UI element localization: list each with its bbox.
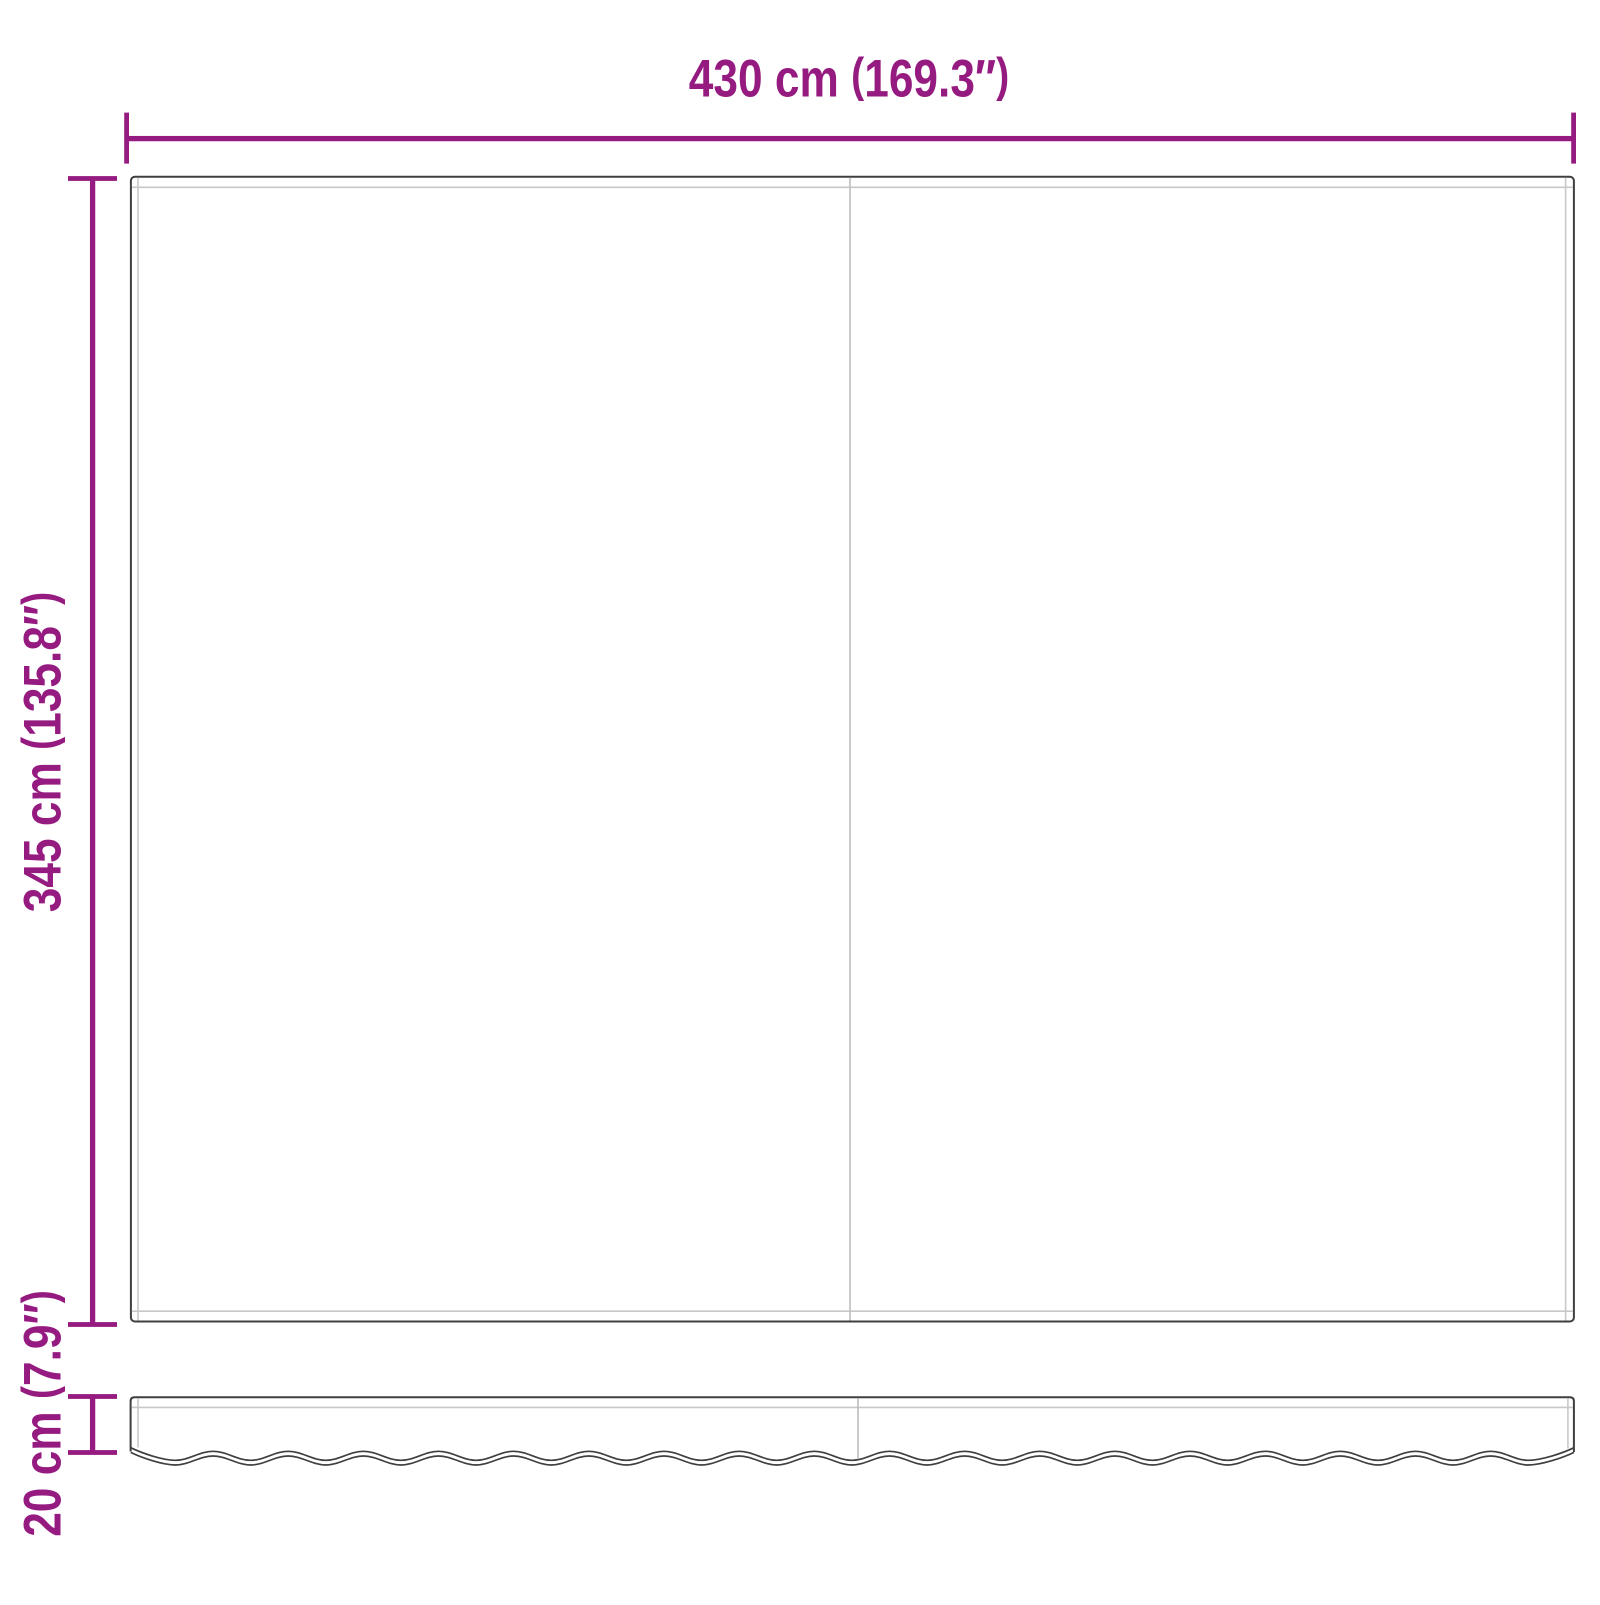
svg-text:345 cm (135.8″): 345 cm (135.8″) bbox=[14, 592, 73, 912]
svg-text:20 cm (7.9″): 20 cm (7.9″) bbox=[14, 1290, 73, 1537]
svg-text:430 cm (169.3″): 430 cm (169.3″) bbox=[689, 50, 1009, 109]
